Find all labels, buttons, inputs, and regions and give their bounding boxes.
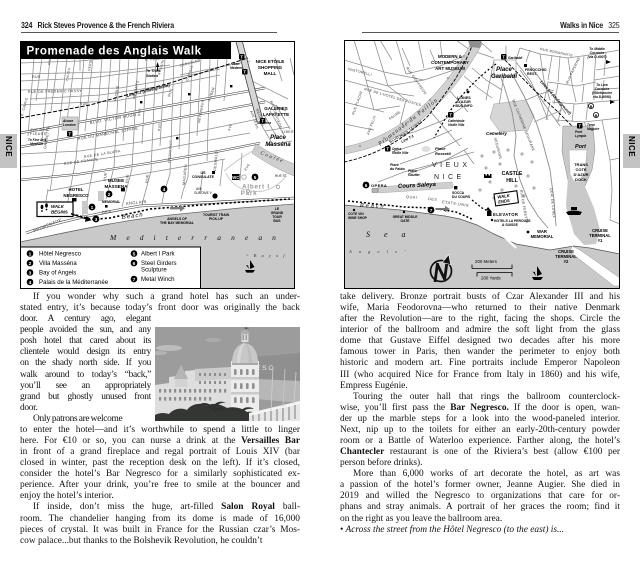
svg-text:Bay of Angels: Bay of Angels [39,270,76,277]
svg-text:WALK: WALK [51,204,65,209]
svg-text:Place: Place [496,67,512,73]
svg-text:QUAI: QUAI [406,195,418,200]
svg-text:RUE: RUE [80,102,88,106]
svg-text:ART MUSEUM: ART MUSEUM [435,66,465,71]
svg-text:MODERN &: MODERN & [438,54,463,59]
svg-text:RUE: RUE [125,174,130,183]
svg-text:To Train: To Train [146,69,161,73]
svg-text:MEMORIAL: MEMORIAL [102,200,120,204]
svg-text:CONTEMPORARY: CONTEMPORARY [431,60,469,65]
svg-text:2: 2 [29,261,32,267]
svg-text:Hôtel Negresco: Hôtel Negresco [39,251,82,258]
svg-text:RUE: RUE [145,174,150,183]
svg-text:Palais de la Méditerranée: Palais de la Méditerranée [39,279,109,286]
svg-text:B: B [590,105,593,109]
svg-text:OPERA: OPERA [371,183,387,188]
svg-text:SHOPPING: SHOPPING [258,65,283,70]
svg-text:NICE: NICE [434,174,465,181]
svg-text:1: 1 [91,205,94,210]
svg-text:200 Meters: 200 Meters [475,259,498,264]
svg-text:200 Yards: 200 Yards [481,276,501,281]
svg-text:4: 4 [163,187,166,192]
svg-text:BUS: BUS [273,219,281,223]
svg-text:Promenade des Anglais Walk: Promenade des Anglais Walk [27,45,202,58]
svg-text:MEMORIAL: MEMORIAL [531,234,554,239]
svg-text:5: 5 [133,251,136,257]
svg-text:T: T [261,119,264,124]
svg-text:Médecin: Médecin [230,66,243,70]
svg-text:HOTEL: HOTEL [69,187,84,192]
svg-text:Station: Station [146,74,159,78]
svg-text:3: 3 [29,270,32,276]
svg-text:NICE ETOILE: NICE ETOILE [256,59,285,64]
svg-text:GUSTAVE V: GUSTAVE V [194,191,213,195]
svg-text:Gautier: Gautier [408,173,421,177]
svg-text:S e a: S e a [366,230,412,239]
svg-text:Maguire: Maguire [587,127,599,131]
svg-text:“ B a y o f: “ B a y o f [246,253,287,258]
svg-text:WINE SHOP: WINE SHOP [348,216,368,220]
svg-text:#2: #2 [564,259,569,264]
svg-text:Masséna: Masséna [265,142,291,148]
svg-text:via D-6098): via D-6098) [593,95,612,99]
svg-text:RUE: RUE [32,75,41,79]
svg-text:MALL: MALL [264,71,277,76]
svg-text:CONSULATE: CONSULATE [192,175,215,179]
svg-text:LIBERTE: LIBERTE [282,130,295,134]
svg-text:3: 3 [95,217,98,222]
svg-text:Sculpture: Sculpture [141,267,167,274]
svg-text:T: T [68,132,71,137]
svg-text:M e d i t e r r a n e a n: M e d i t e r r a n e a n [109,233,280,242]
svg-text:Albert I Park: Albert I Park [141,251,175,258]
svg-text:DU COURS: DU COURS [452,195,471,199]
svg-text:Beach: Beach [360,203,386,210]
svg-text:1: 1 [29,251,32,257]
svg-text:Museum: Museum [30,142,43,146]
svg-text:5: 5 [254,175,257,180]
svg-text:Port: Port [575,144,587,150]
svg-text:du Palais: du Palais [390,167,405,171]
svg-text:Park: Park [241,190,258,197]
svg-text:LAFAYETTE: LAFAYETTE [263,112,289,117]
svg-text:7: 7 [430,208,433,213]
svg-text:ELEVATOR: ELEVATOR [493,212,518,217]
svg-text:HILL: HILL [506,178,518,184]
svg-text:Garibaldi: Garibaldi [491,74,517,80]
svg-text:RUE: RUE [137,108,142,116]
svg-text:CASTLE: CASTLE [502,171,523,177]
svg-text:REST.: REST. [527,72,537,76]
svg-text:Rossetti: Rossetti [435,151,452,156]
svg-text:Lorraine: Lorraine [63,123,76,127]
svg-text:THE BAY MEMORIAL: THE BAY MEMORIAL [160,221,194,225]
svg-text:& SUISSE: & SUISSE [502,223,519,227]
svg-text:T: T [578,124,581,129]
svg-text:DOCK: DOCK [575,177,587,182]
svg-text:Garibaldi: Garibaldi [508,56,522,60]
svg-text:2: 2 [108,192,111,197]
svg-text:Vieille Ville: Vieille Ville [448,123,465,127]
svg-text:Villa Masséna: Villa Masséna [39,260,77,267]
svg-text:Cemetery: Cemetery [486,131,507,136]
svg-text:6: 6 [365,183,368,188]
svg-text:WC: WC [232,175,239,180]
svg-text:T: T [502,55,505,60]
svg-text:MUSEE: MUSEE [108,178,124,183]
svg-text:GATE: GATE [401,219,411,223]
svg-text:A n g e l s ’: A n g e l s ’ [348,249,408,254]
svg-text:PICK-UP: PICK-UP [209,217,224,221]
svg-text:BEGINS: BEGINS [51,210,68,215]
svg-text:FLEURS: FLEURS [30,132,47,136]
svg-text:RUE ST.: RUE ST. [275,174,287,178]
svg-text:BUS INFO: BUS INFO [455,104,472,108]
svg-text:NEGRESCO: NEGRESCO [63,193,89,198]
svg-text:GALERIES: GALERIES [264,106,287,111]
svg-text:6: 6 [133,261,136,267]
svg-text:4: 4 [29,280,32,286]
svg-text:VIEUX: VIEUX [432,162,471,169]
svg-text:7: 7 [133,277,136,283]
svg-text:Place: Place [270,135,286,141]
svg-text:Lympia: Lympia [575,134,586,138]
svg-text:Metal Winch: Metal Winch [141,276,175,283]
svg-text:#1: #1 [598,238,603,243]
svg-text:(via D-6007): (via D-6007) [587,55,607,59]
svg-text:RUE: RUE [157,123,162,131]
svg-text:T: T [386,147,389,152]
svg-text:T: T [243,70,246,75]
svg-text:T: T [240,55,243,60]
svg-text:Vieille Ville: Vieille Ville [392,151,409,155]
svg-text:T: T [449,113,452,118]
svg-text:B: B [595,114,598,118]
